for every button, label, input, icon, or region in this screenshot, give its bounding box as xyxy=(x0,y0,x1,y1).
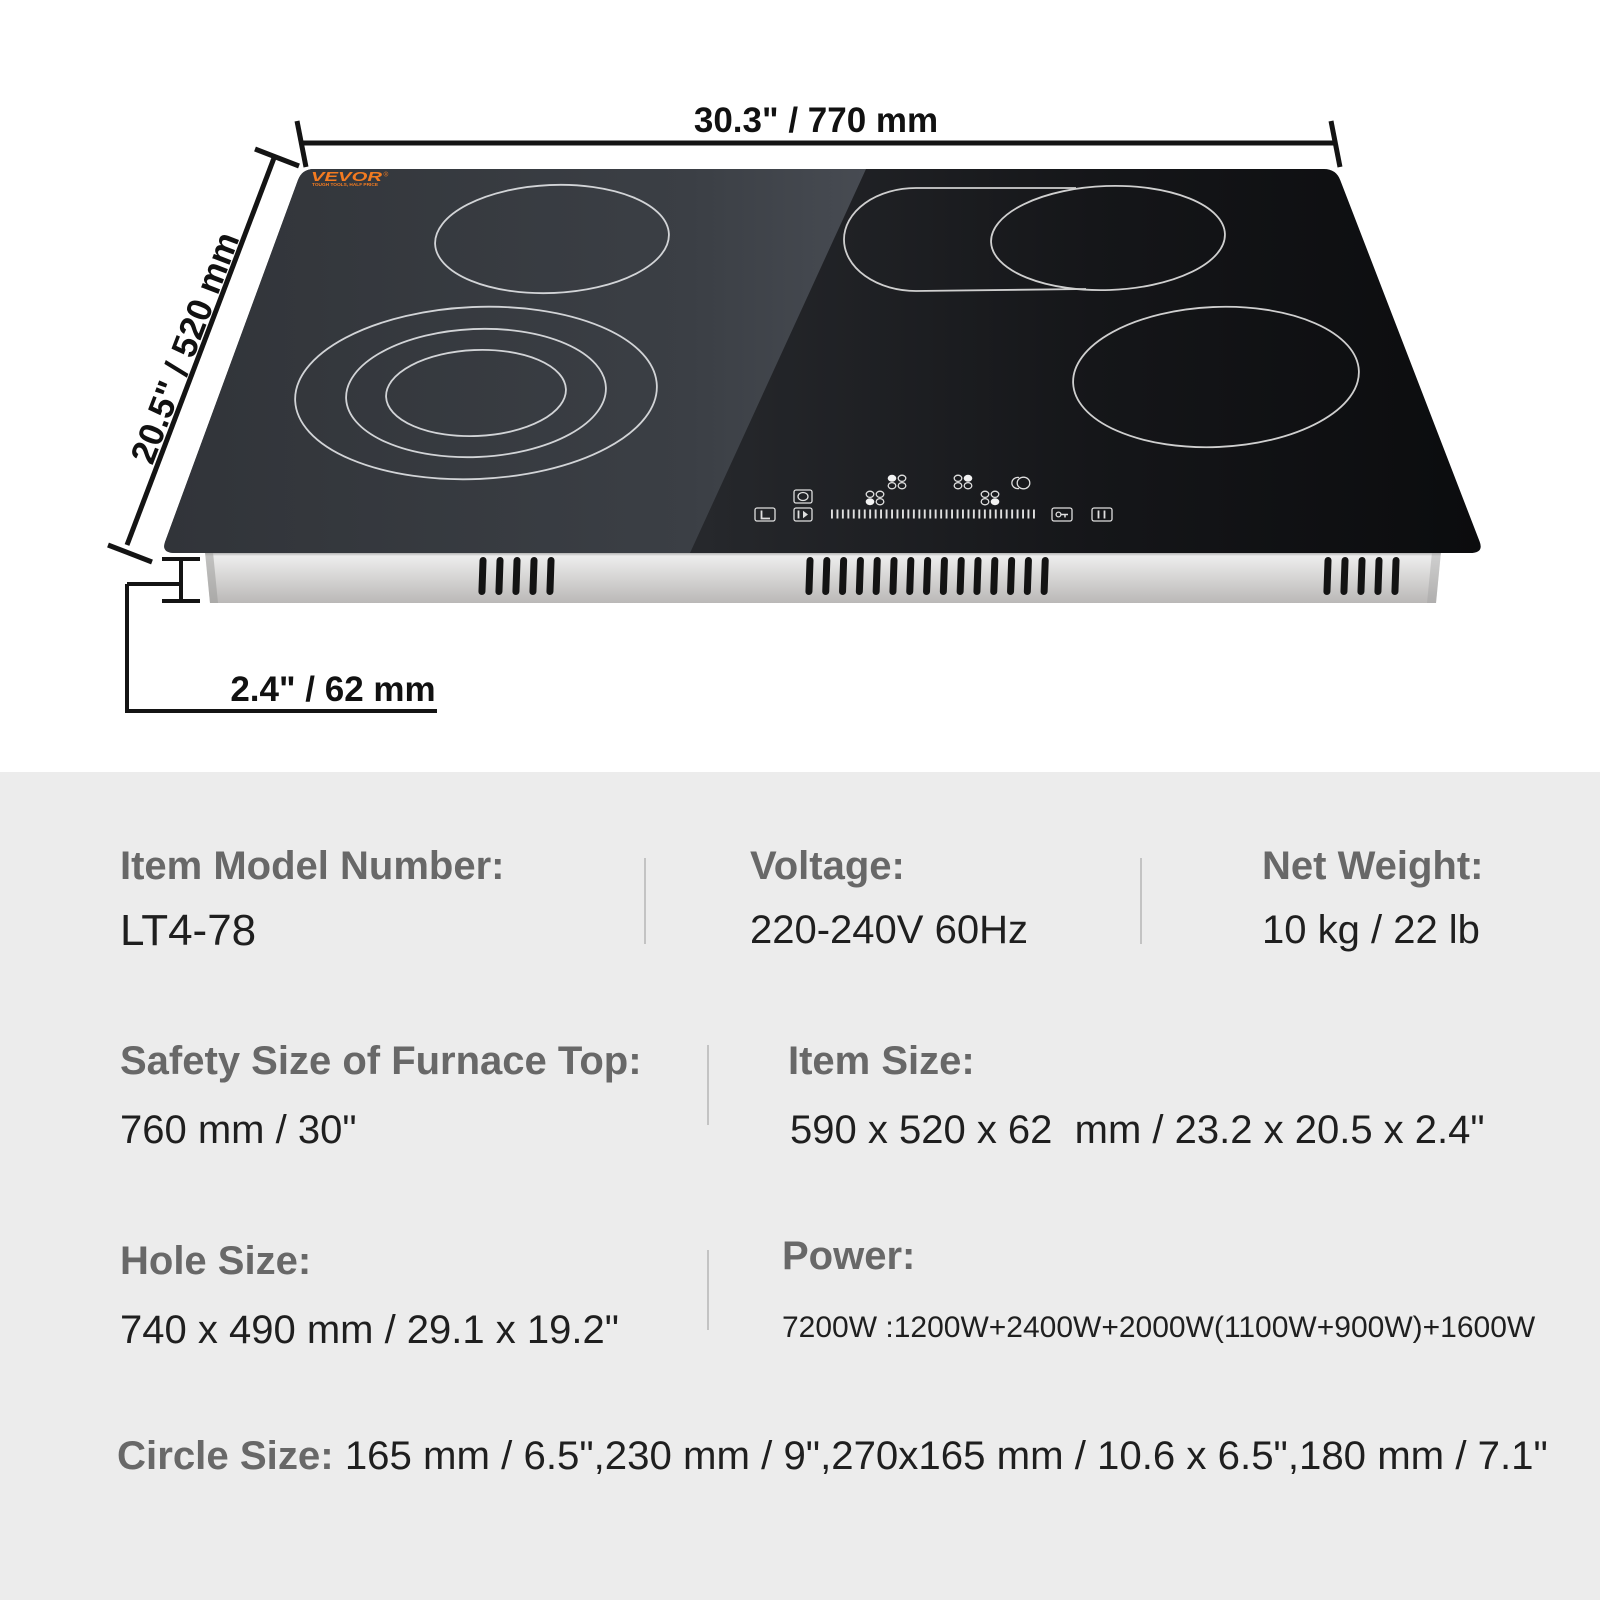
svg-text:TOUGH TOOLS, HALF PRICE: TOUGH TOOLS, HALF PRICE xyxy=(312,182,378,187)
svg-text:30.3" / 770 mm: 30.3" / 770 mm xyxy=(694,101,938,140)
svg-text:2.4" / 62 mm: 2.4" / 62 mm xyxy=(230,670,435,709)
svg-text:®: ® xyxy=(384,171,389,179)
